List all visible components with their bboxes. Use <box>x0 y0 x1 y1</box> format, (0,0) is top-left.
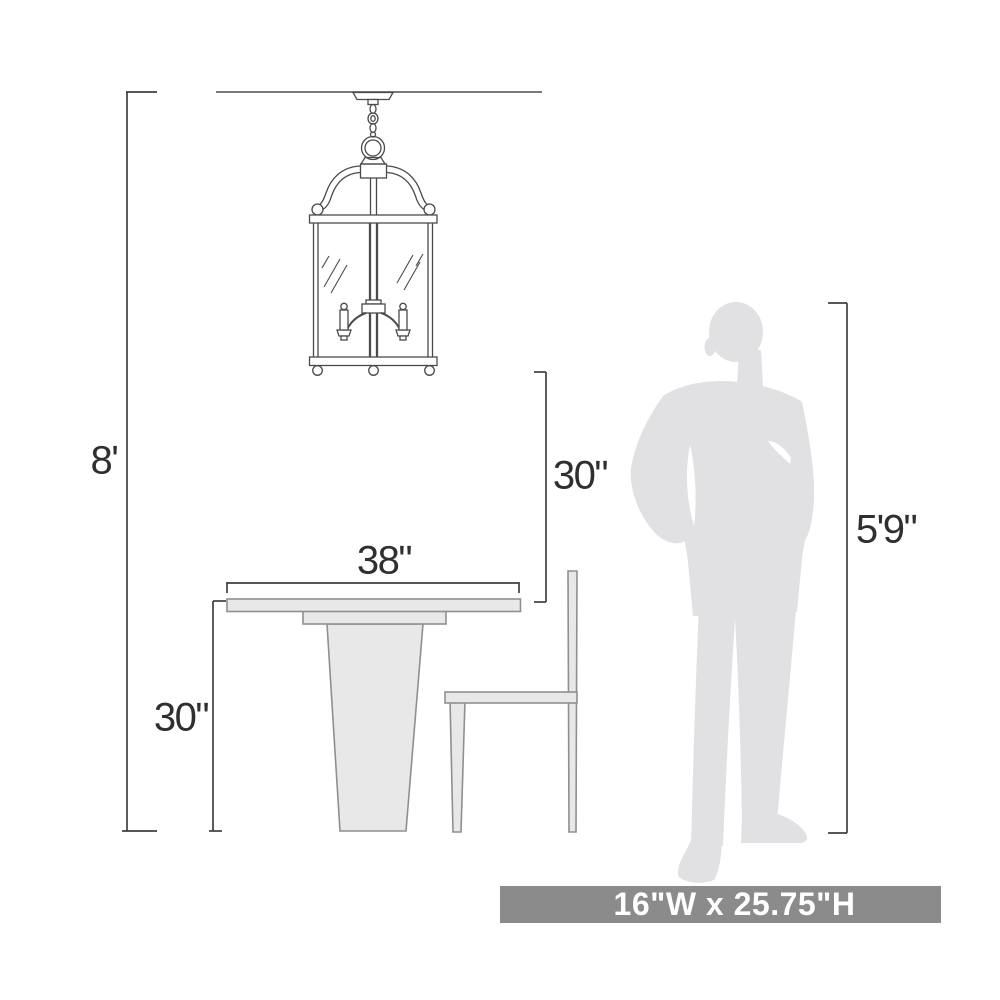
person-right-shoe <box>741 814 807 843</box>
table-top <box>227 599 521 612</box>
bottom-ball-left <box>313 366 323 376</box>
bracket-table-height-30in <box>209 601 226 831</box>
person-silhouette <box>631 302 814 883</box>
candle-sleeve-left <box>340 310 348 330</box>
candle-cluster <box>337 300 410 340</box>
bottom-ball-right <box>425 366 435 376</box>
fixture-size-badge: 16"W x 25.75"H <box>500 886 941 923</box>
bulb-left <box>341 303 347 309</box>
stem-block <box>361 164 387 178</box>
candle-sleeve-right <box>399 310 407 330</box>
glass-reflection-marks <box>322 254 423 293</box>
canopy <box>353 93 393 100</box>
bracket-person-height-5ft9 <box>828 303 847 833</box>
person-left-shoe <box>678 840 722 883</box>
bobeche-left <box>337 330 351 336</box>
bracket-fixture-to-table-30in <box>534 372 546 602</box>
person-left-leg <box>691 602 736 848</box>
fixture-to-table-label: 30" <box>553 454 607 499</box>
bulb-right <box>400 303 406 309</box>
ceiling-height-label: 8' <box>91 439 118 484</box>
scale-diagram-canvas: 8' 30" 38" 30" 5'9" 16"W x 25.75"H <box>0 0 1000 1000</box>
table-height-label: 30" <box>154 696 208 741</box>
bracket-ceiling-height-8ft <box>122 92 157 831</box>
table-width-label: 38" <box>357 539 411 584</box>
chain <box>368 105 378 138</box>
dining-table-drawing <box>227 599 521 831</box>
lantern-glass-frame <box>314 223 433 357</box>
lantern-top-rail <box>310 215 438 223</box>
person-height-label: 5'9" <box>856 508 916 553</box>
fixture-size-text: 16"W x 25.75"H <box>586 886 856 923</box>
hanger-ring <box>362 137 385 160</box>
bottom-ball-center <box>369 366 379 376</box>
finial-cap <box>361 158 385 165</box>
table-pedestal <box>327 624 423 831</box>
corner-ball-left <box>312 204 323 215</box>
pendant-lantern-drawing <box>310 93 438 376</box>
lantern-bottom-rail <box>310 357 438 366</box>
scroll-arms <box>314 166 434 211</box>
chair-seat <box>445 692 577 703</box>
chair-front-leg <box>450 700 465 832</box>
corner-ball-right <box>424 204 435 215</box>
person-right-leg <box>734 597 797 824</box>
bobeche-right <box>396 330 410 336</box>
diagram-drawing <box>0 0 1000 1000</box>
bracket-table-width-38in <box>227 582 519 593</box>
